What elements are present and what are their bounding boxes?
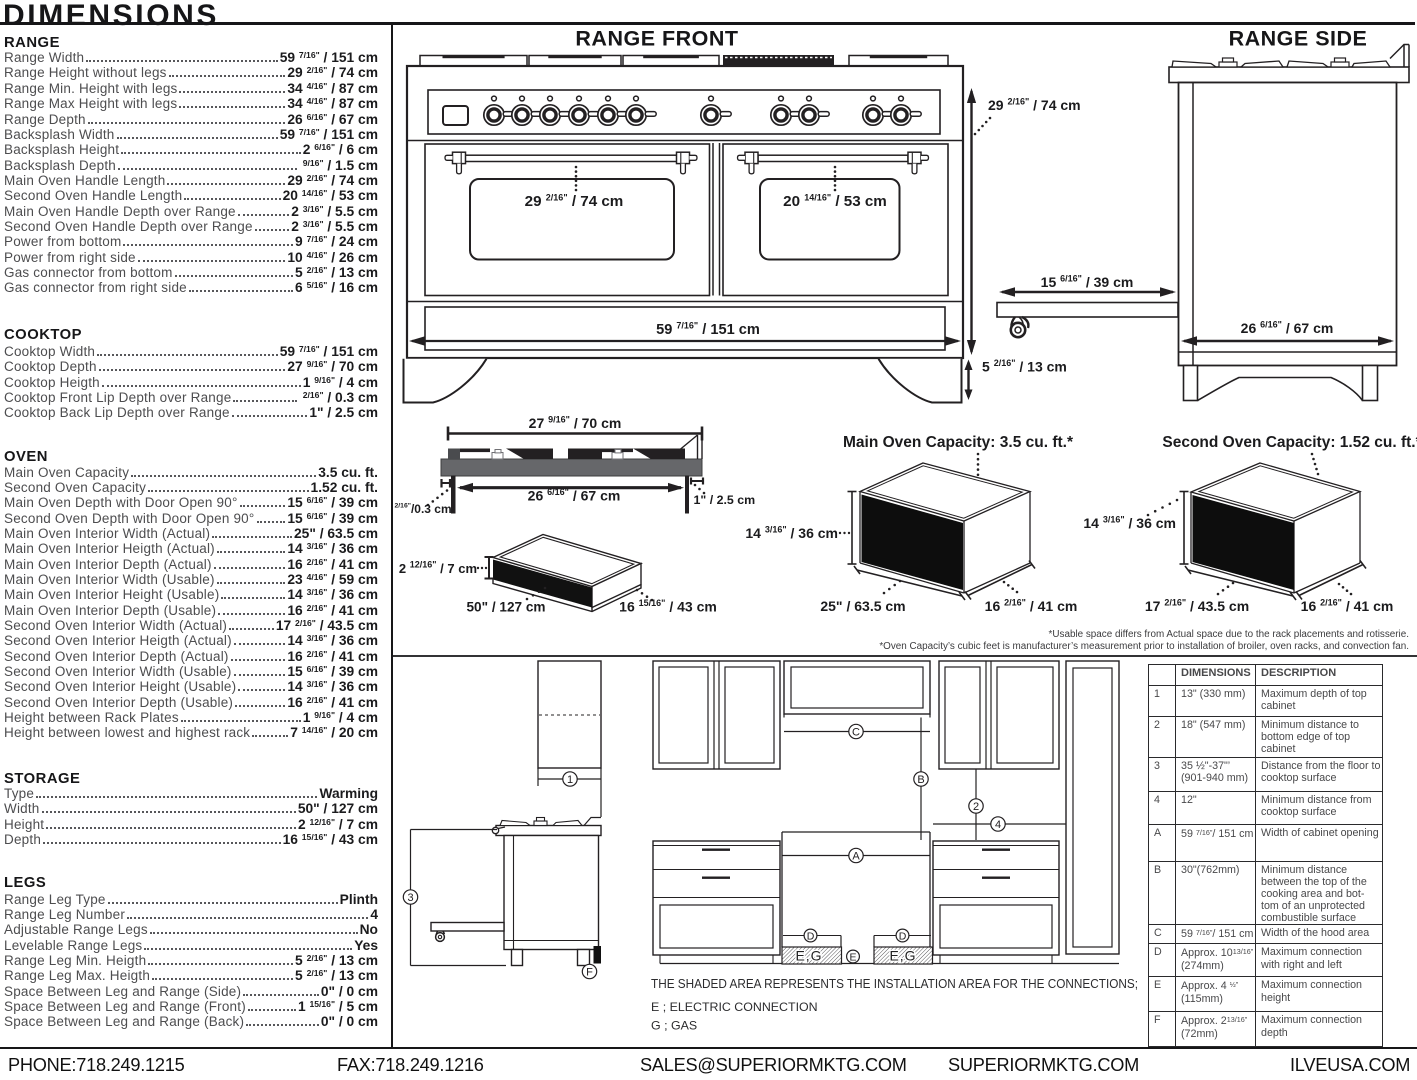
- svg-text:25" / 63.5 cm: 25" / 63.5 cm: [820, 598, 905, 614]
- svg-text:26 6/16" / 67 cm: 26 6/16" / 67 cm: [528, 487, 621, 503]
- svg-text:17 2/16" / 43.5 cm: 17 2/16" / 43.5 cm: [1145, 598, 1249, 614]
- svg-text:C: C: [852, 726, 860, 738]
- svg-text:29 2/16" / 74 cm: 29 2/16" / 74 cm: [525, 193, 624, 210]
- svg-text:D: D: [807, 930, 815, 942]
- svg-text:*Usable space differs from Act: *Usable space differs from Actual space …: [1049, 629, 1409, 640]
- svg-text:5 2/16" / 13 cm: 5 2/16" / 13 cm: [982, 358, 1067, 374]
- svg-text:RANGE FRONT: RANGE FRONT: [575, 27, 738, 51]
- svg-text:Main Oven Capacity: 3.5 cu. ft: Main Oven Capacity: 3.5 cu. ft.*: [843, 434, 1074, 451]
- svg-text:B: B: [917, 774, 924, 786]
- svg-text:20 14/16" / 53 cm: 20 14/16" / 53 cm: [783, 193, 887, 210]
- svg-text:14 3/16" / 36 cm: 14 3/16" / 36 cm: [1083, 515, 1176, 531]
- svg-text:15 6/16" / 39 cm: 15 6/16" / 39 cm: [1041, 274, 1134, 290]
- svg-text:27 9/16" / 70 cm: 27 9/16" / 70 cm: [529, 415, 622, 431]
- svg-text:1" / 2.5 cm: 1" / 2.5 cm: [694, 493, 756, 507]
- svg-text:50" / 127 cm: 50" / 127 cm: [466, 600, 545, 615]
- svg-text:F: F: [586, 966, 593, 978]
- svg-text:E,G: E,G: [889, 948, 916, 964]
- svg-text:16 15/16" / 43 cm: 16 15/16" / 43 cm: [619, 598, 717, 614]
- svg-text:26 6/16" / 67 cm: 26 6/16" / 67 cm: [1241, 320, 1334, 336]
- svg-text:2/16"/0.3 cm: 2/16"/0.3 cm: [395, 502, 452, 516]
- svg-text:59 7/16" / 151 cm: 59 7/16" / 151 cm: [656, 321, 760, 338]
- svg-text:2 12/16" / 7 cm: 2 12/16" / 7 cm: [399, 560, 477, 576]
- svg-text:RANGE SIDE: RANGE SIDE: [1229, 27, 1368, 51]
- svg-text:A: A: [852, 850, 860, 862]
- svg-text:29 2/16" / 74 cm: 29 2/16" / 74 cm: [988, 97, 1081, 113]
- svg-text:THE SHADED AREA REPRESENTS THE: THE SHADED AREA REPRESENTS THE INSTALLAT…: [651, 976, 1138, 991]
- svg-text:16 2/16" / 41 cm: 16 2/16" / 41 cm: [985, 598, 1078, 614]
- svg-text:G ; GAS: G ; GAS: [651, 1019, 697, 1033]
- svg-text:Second Oven Capacity: 1.52 cu.: Second Oven Capacity: 1.52 cu. ft.*: [1162, 434, 1417, 451]
- svg-text:1: 1: [567, 774, 573, 786]
- svg-text:14 3/16" / 36 cm: 14 3/16" / 36 cm: [745, 525, 838, 541]
- svg-text:2: 2: [973, 801, 979, 813]
- svg-text:16 2/16" / 41 cm: 16 2/16" / 41 cm: [1301, 598, 1394, 614]
- svg-text:D: D: [899, 930, 907, 942]
- svg-text:E: E: [849, 951, 856, 963]
- svg-text:*Oven Capacity’s cubic feet is: *Oven Capacity’s cubic feet is manufactu…: [879, 641, 1409, 652]
- svg-text:E,G: E,G: [795, 948, 822, 964]
- svg-text:E ; ELECTRIC CONNECTION: E ; ELECTRIC CONNECTION: [651, 1000, 818, 1014]
- svg-text:4: 4: [995, 819, 1001, 831]
- svg-text:3: 3: [407, 892, 413, 904]
